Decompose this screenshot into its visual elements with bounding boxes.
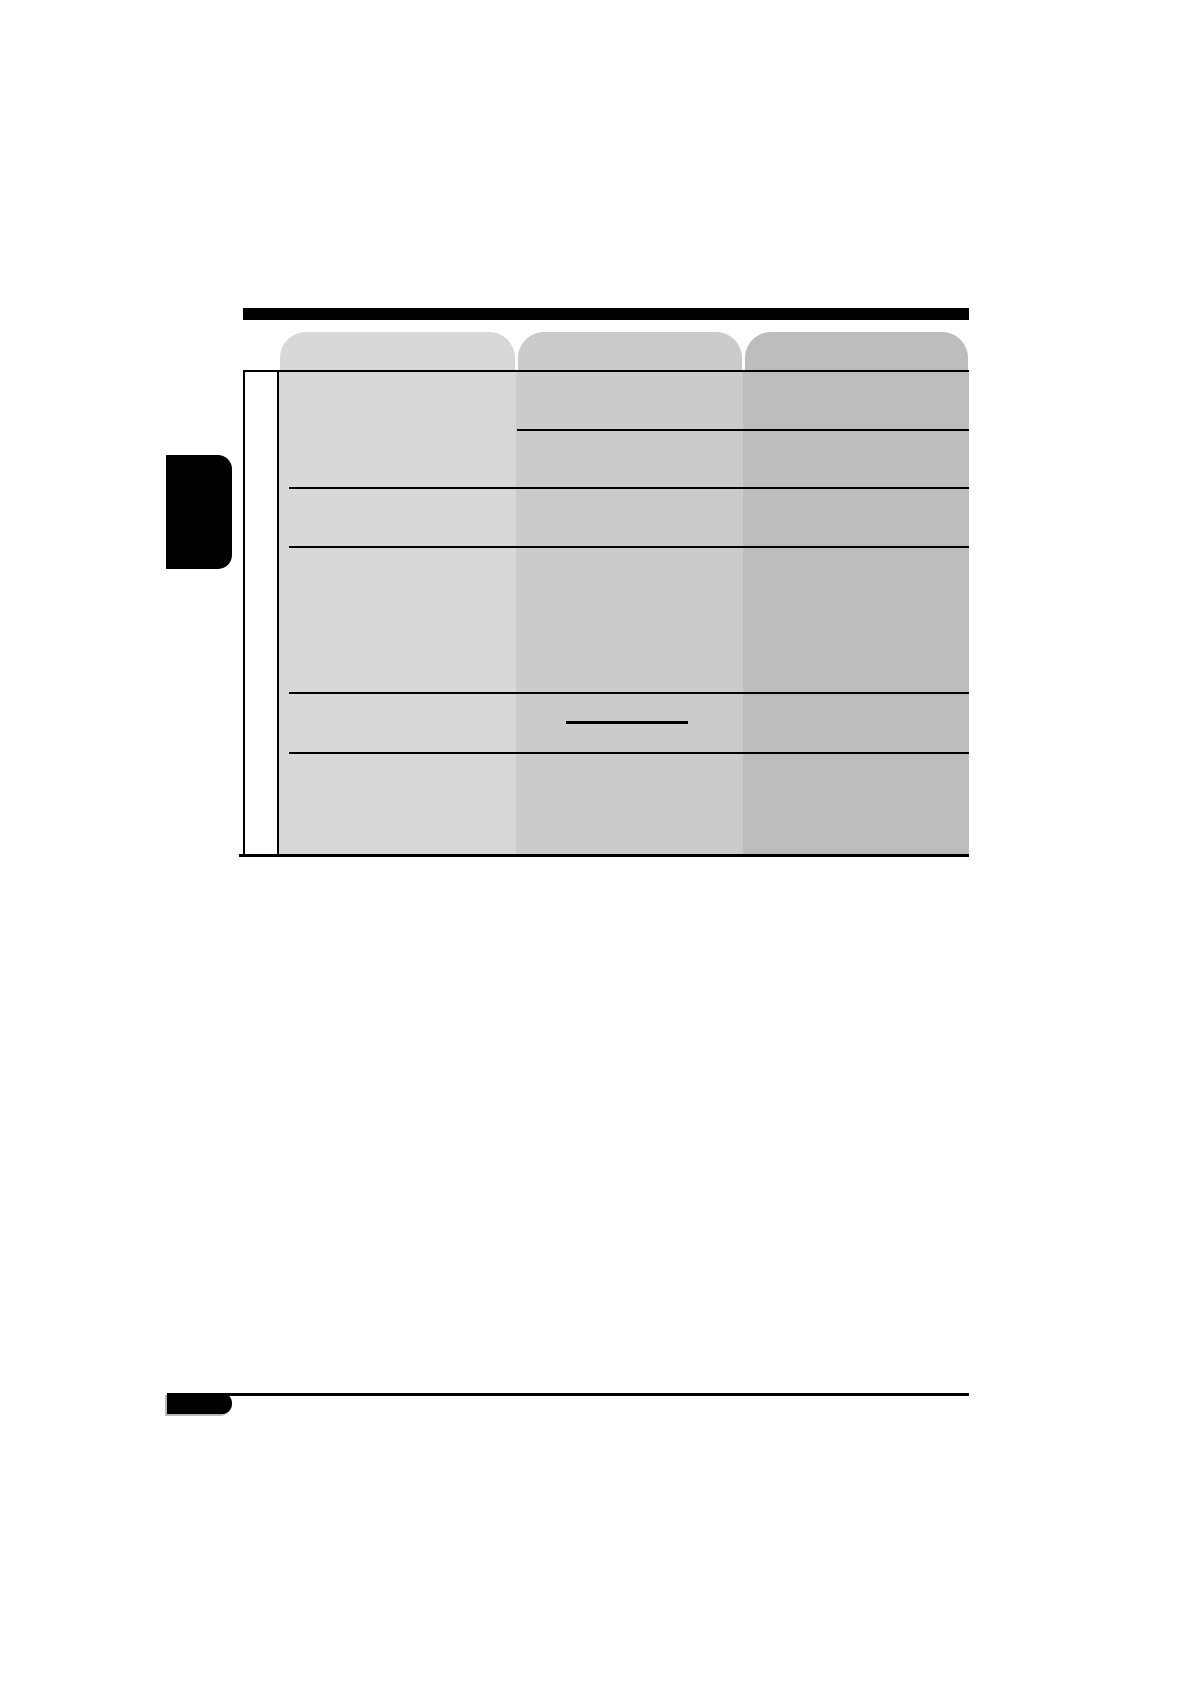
table-column-tab-3 xyxy=(745,332,968,372)
document-page xyxy=(0,0,1190,1684)
table-column-2-body xyxy=(516,371,743,855)
row-divider-3 xyxy=(289,692,969,694)
table-top-border xyxy=(243,370,969,372)
row-divider-2 xyxy=(289,546,969,548)
row-divider-cols-2-3 xyxy=(517,429,969,431)
table-gutter-right-border xyxy=(277,370,279,857)
chapter-thumb-tab xyxy=(166,455,232,569)
table-bottom-border xyxy=(239,854,969,857)
table-column-tab-2 xyxy=(518,332,742,372)
page-number-tab xyxy=(167,1393,232,1414)
footer-rule xyxy=(168,1393,969,1396)
table-column-1-body xyxy=(279,371,516,855)
table-column-3-body xyxy=(743,371,969,855)
table-column-tab-1 xyxy=(280,332,515,372)
cell-underline-mark xyxy=(566,721,688,724)
row-divider-4 xyxy=(289,752,969,754)
section-title-bar xyxy=(243,308,969,320)
row-divider-1 xyxy=(289,487,969,489)
table-outer-left-border xyxy=(243,370,245,857)
